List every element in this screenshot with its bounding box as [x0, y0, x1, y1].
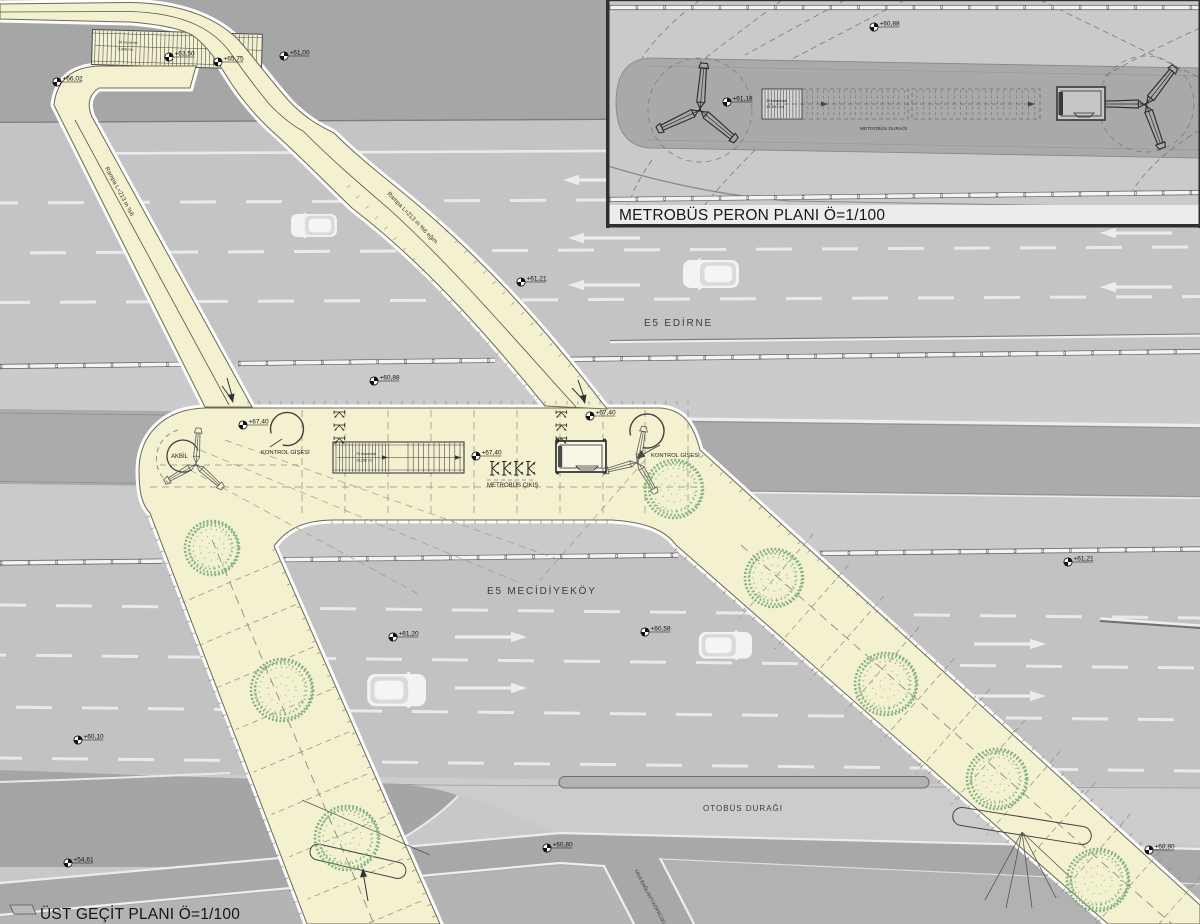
svg-text:+61,21: +61,21	[527, 276, 547, 283]
svg-text:19,100 cm: 19,100 cm	[766, 105, 784, 109]
svg-text:+63,50: +63,50	[175, 51, 195, 58]
svg-text:+60,80: +60,80	[1155, 844, 1175, 851]
svg-text:METROBÜS ÇIKIŞ: METROBÜS ÇIKIŞ	[487, 482, 538, 489]
svg-text:OTOBÜS DURAĞI: OTOBÜS DURAĞI	[703, 804, 783, 813]
svg-text:+60,58: +60,58	[651, 626, 671, 633]
svg-text:METROBÜS DURAĞI: METROBÜS DURAĞI	[860, 125, 907, 132]
svg-text:+61,18: +61,18	[733, 96, 753, 103]
svg-text:+54,61: +54,61	[74, 857, 94, 864]
svg-text:+61,00: +61,00	[290, 50, 310, 57]
svg-text:+66,02: +66,02	[63, 76, 83, 83]
svg-text:36 basamak: 36 basamak	[118, 40, 138, 45]
svg-text:AKBİL: AKBİL	[171, 453, 189, 460]
svg-text:+67,40: +67,40	[596, 410, 616, 417]
svg-text:+67,40: +67,40	[249, 419, 269, 426]
svg-text:METROBÜS PERON PLANI Ö=1/100: METROBÜS PERON PLANI Ö=1/100	[619, 206, 885, 224]
svg-text:KONTROL GİŞESİ: KONTROL GİŞESİ	[261, 449, 310, 456]
svg-text:+65,75: +65,75	[224, 56, 244, 63]
svg-text:+61,20: +61,20	[399, 631, 419, 638]
svg-text:+60,88: +60,88	[880, 21, 900, 28]
svg-text:16,250 cm: 16,250 cm	[356, 459, 373, 463]
svg-text:5,908 cm: 5,908 cm	[118, 47, 133, 51]
svg-text:+61,21: +61,21	[1074, 556, 1094, 563]
svg-text:E5 EDİRNE: E5 EDİRNE	[644, 316, 713, 329]
svg-text:76 basamak: 76 basamak	[356, 452, 376, 456]
svg-text:KONTROL GİŞESİ: KONTROL GİŞESİ	[651, 452, 700, 459]
svg-text:+60,80: +60,80	[553, 842, 573, 849]
svg-text:+60,10: +60,10	[84, 734, 104, 741]
svg-text:ÜST GEÇİT PLANI Ö=1/100: ÜST GEÇİT PLANI Ö=1/100	[40, 905, 240, 923]
svg-text:+60,88: +60,88	[380, 375, 400, 382]
svg-text:+67,40: +67,40	[482, 450, 502, 457]
svg-text:E5 MECİDİYEKÖY: E5 MECİDİYEKÖY	[487, 584, 597, 597]
svg-text:39 basamak: 39 basamak	[766, 99, 787, 103]
